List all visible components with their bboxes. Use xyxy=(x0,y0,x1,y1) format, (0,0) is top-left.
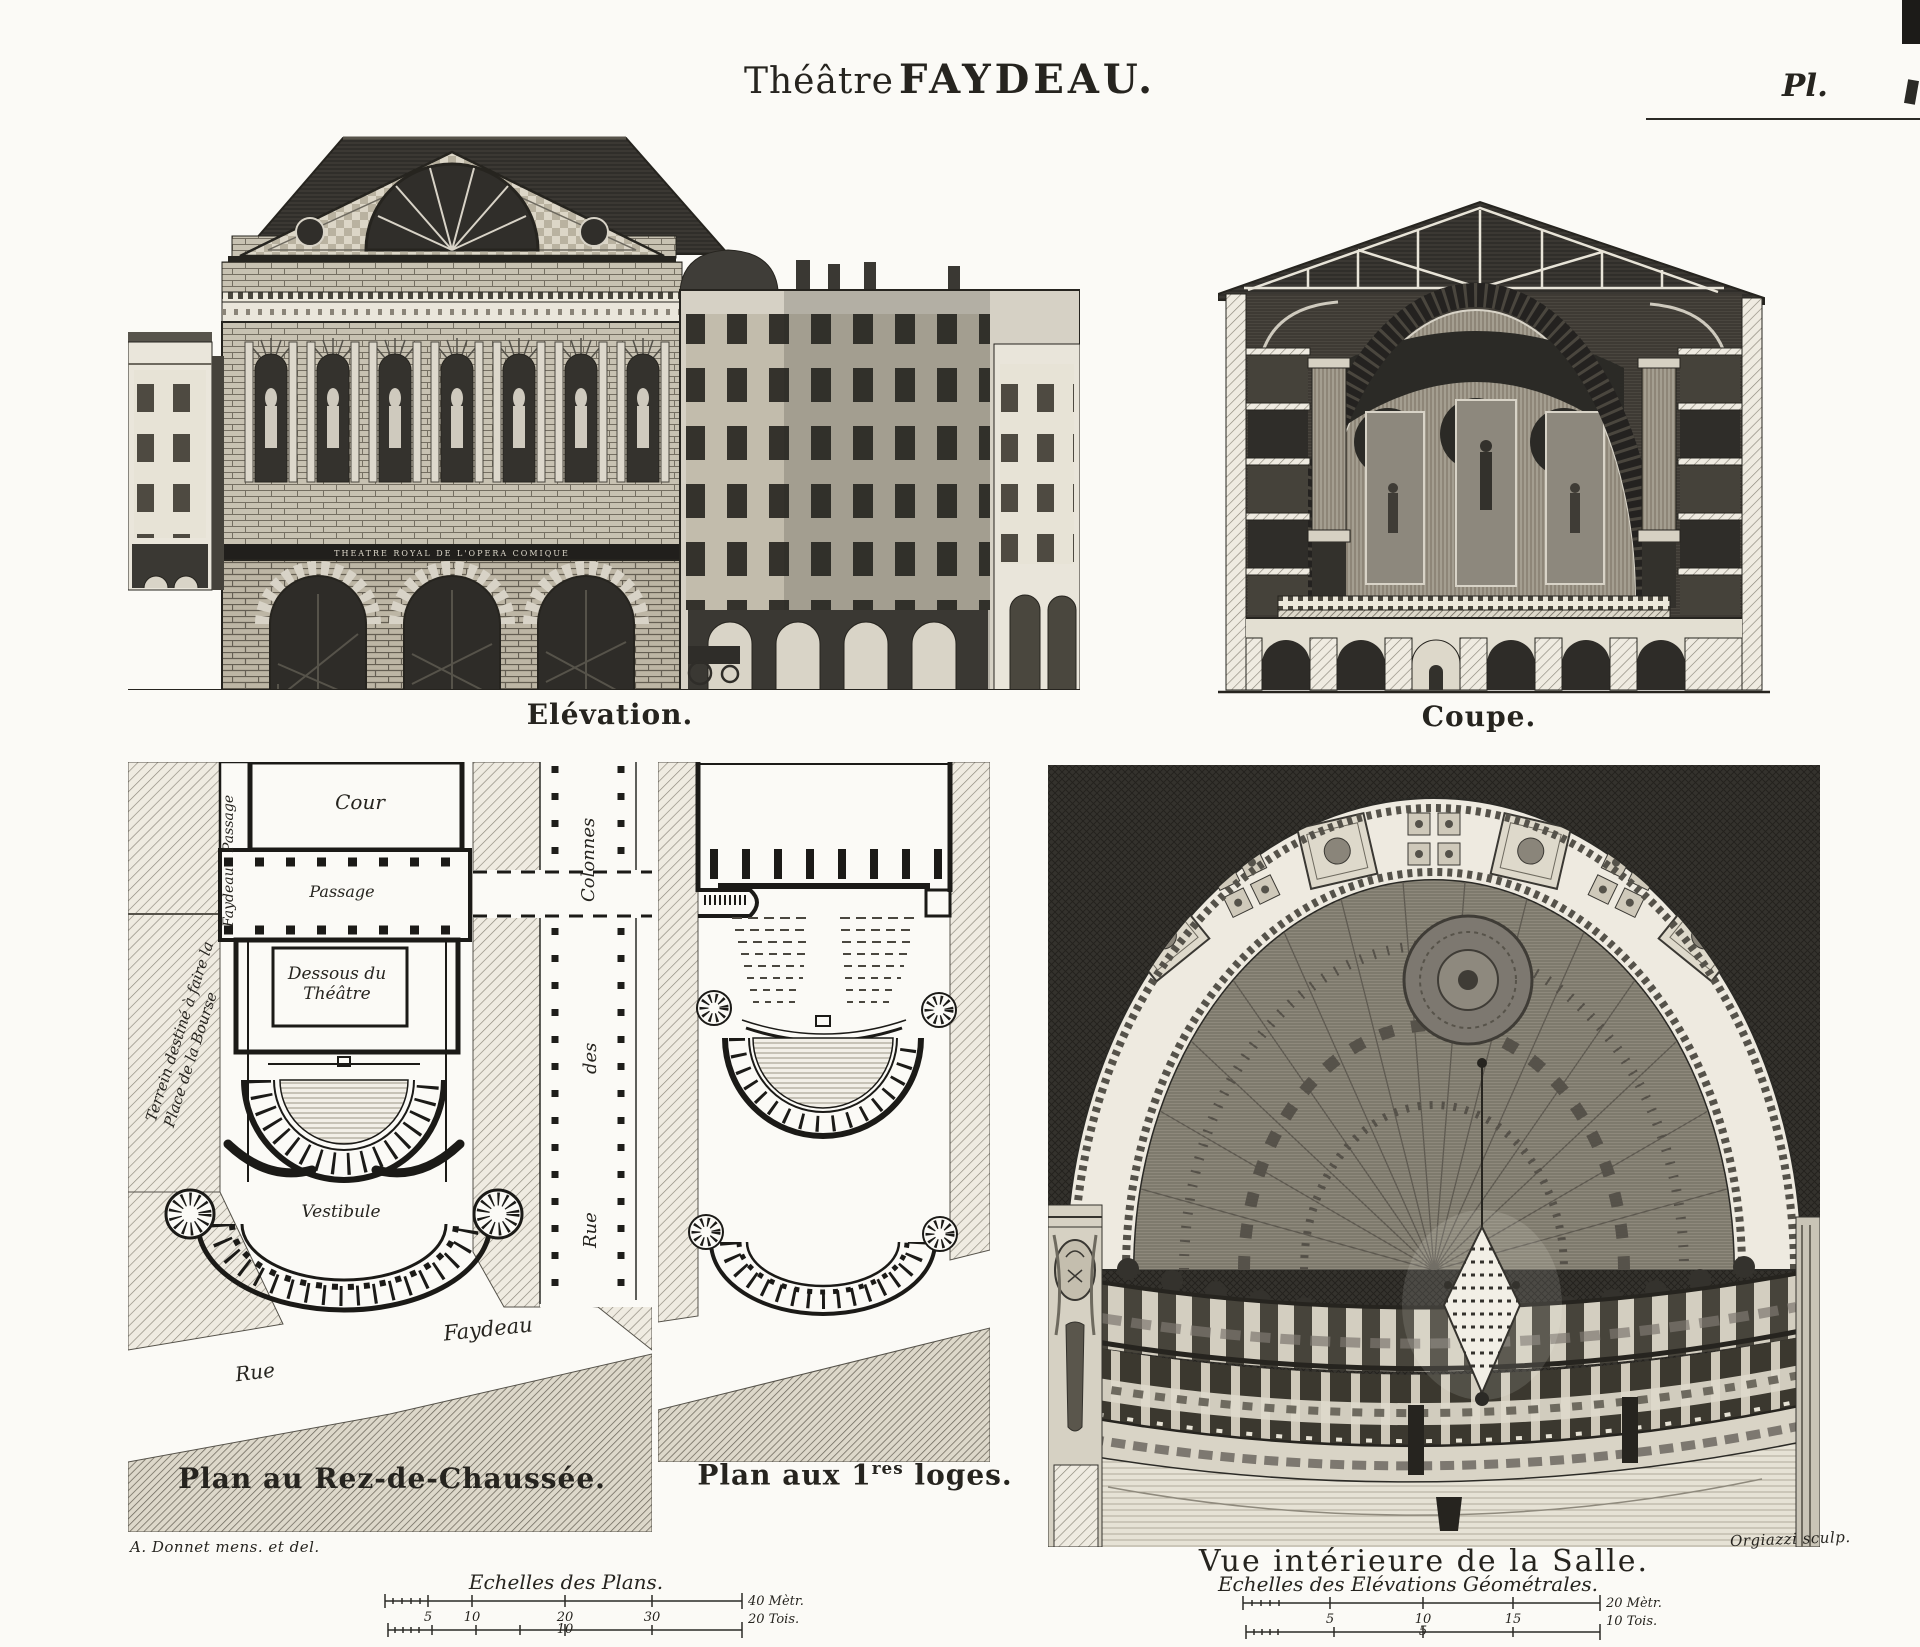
auditorium-plan xyxy=(689,991,957,1314)
loges-plan-caption: Plan aux 1res loges. xyxy=(697,1458,1012,1491)
ground-plan-figure: Cour Passage Passage Faydeau Dessous du … xyxy=(128,762,652,1532)
scale-elev-tick-5: 5 xyxy=(1326,1612,1334,1627)
coupe-drawing xyxy=(1218,198,1770,698)
caryatid-figure xyxy=(1066,1322,1084,1431)
plate-title: Théâtre FAYDEAU. xyxy=(0,56,1910,103)
page-corner-mark xyxy=(1902,0,1920,44)
scale-plans-tick-30: 30 xyxy=(644,1610,661,1625)
scale-elev-toise-end: 10 Tois. xyxy=(1606,1614,1657,1629)
scale-plans-group: Echelles des Plans. 5 10 20 30 40 Mètr. … xyxy=(380,1570,820,1640)
basement-vaults xyxy=(1246,618,1742,690)
right-wall-section xyxy=(1742,298,1762,690)
delineator-credit: A. Donnet mens. et del. xyxy=(130,1538,320,1556)
plate-title-bold: FAYDEAU. xyxy=(899,56,1156,103)
left-royal-box-pier xyxy=(1048,1205,1102,1547)
plate-rule xyxy=(1646,118,1920,120)
engraver-credit: Orgiazzi sculp. xyxy=(1730,1528,1851,1550)
coupe-caption: Coupe. xyxy=(1422,700,1536,733)
attic-and-entablature xyxy=(222,262,682,322)
scale-elev-tick-15: 15 xyxy=(1505,1612,1522,1627)
coupe-figure xyxy=(1218,198,1770,698)
scale-elev-metric-end: 20 Mètr. xyxy=(1606,1596,1662,1611)
label-cour: Cour xyxy=(335,790,385,814)
left-wall-section xyxy=(1226,294,1246,690)
ground-plan-drawing xyxy=(128,762,652,1532)
right-pier xyxy=(1796,1217,1820,1547)
label-faydeau-vertical: Faydeau xyxy=(221,867,237,927)
scale-plans-metric-end: 40 Mètr. xyxy=(748,1594,804,1609)
stage-floor xyxy=(1278,596,1670,618)
right-oculus xyxy=(580,218,608,246)
frieze-inscription: THEATRE ROYAL DE L'OPERA COMIQUE xyxy=(334,549,570,558)
label-colonnes-vertical: Colonnes xyxy=(578,818,599,902)
left-vomitory-door xyxy=(1408,1405,1424,1475)
engraved-plate-page: Théâtre FAYDEAU. Pl. xyxy=(0,0,1920,1647)
loges-plan-figure xyxy=(658,762,990,1462)
right-neighbor-buildings xyxy=(680,250,1080,690)
label-passage: Passage xyxy=(309,882,374,901)
statue-niches xyxy=(245,338,669,482)
side-boxes-left xyxy=(1246,348,1350,615)
frieze-band: THEATRE ROYAL DE L'OPERA COMIQUE xyxy=(222,544,682,560)
loges-plan-drawing xyxy=(658,762,990,1462)
label-passage-vertical: Passage xyxy=(221,795,237,852)
elevation-figure: THEATRE ROYAL DE L'OPERA COMIQUE xyxy=(128,124,1080,690)
scale-plans-toise-mid: 10 xyxy=(557,1622,574,1637)
stage-floor-fan xyxy=(732,918,916,1002)
interior-view-drawing xyxy=(1048,765,1820,1547)
prompter-box xyxy=(1436,1497,1462,1531)
scale-elev-toise-mid: 5 xyxy=(1419,1624,1427,1639)
entrance-arches xyxy=(262,568,642,690)
scale-plans-tick-5: 5 xyxy=(424,1610,432,1625)
dome-medallion xyxy=(1404,916,1532,1044)
scale-plans-tick-10: 10 xyxy=(464,1610,481,1625)
scale-plans-toise-end: 20 Tois. xyxy=(748,1612,799,1627)
elevation-caption: Elévation. xyxy=(527,698,694,731)
left-neighbor-building xyxy=(128,332,224,590)
stage-plan xyxy=(698,762,950,916)
left-oculus xyxy=(296,218,324,246)
label-des-vertical: des xyxy=(580,1043,601,1074)
label-rue-diagonal: Rue xyxy=(234,1358,276,1387)
passage-crossing xyxy=(473,870,652,918)
label-rue-vertical: Rue xyxy=(580,1212,601,1248)
plate-title-regular: Théâtre xyxy=(744,61,894,102)
label-dessous: Dessous du Théâtre xyxy=(288,964,386,1004)
ground-plan-caption: Plan au Rez-de-Chaussée. xyxy=(178,1462,606,1495)
plate-number-label: Pl. xyxy=(1782,68,1828,104)
elevation-drawing: THEATRE ROYAL DE L'OPERA COMIQUE xyxy=(128,124,1080,690)
scale-elevations-title: Echelles des Elévations Géométrales. xyxy=(1218,1572,1598,1596)
right-vomitory-door xyxy=(1622,1397,1638,1463)
interior-view-figure xyxy=(1048,765,1820,1547)
label-vestibule: Vestibule xyxy=(301,1202,380,1222)
scale-elevations-group: Echelles des Elévations Géométrales. 5 1… xyxy=(1238,1572,1678,1642)
foreground-block xyxy=(658,1328,990,1462)
scale-plans-title: Echelles des Plans. xyxy=(469,1570,663,1594)
side-boxes-right xyxy=(1638,348,1742,615)
